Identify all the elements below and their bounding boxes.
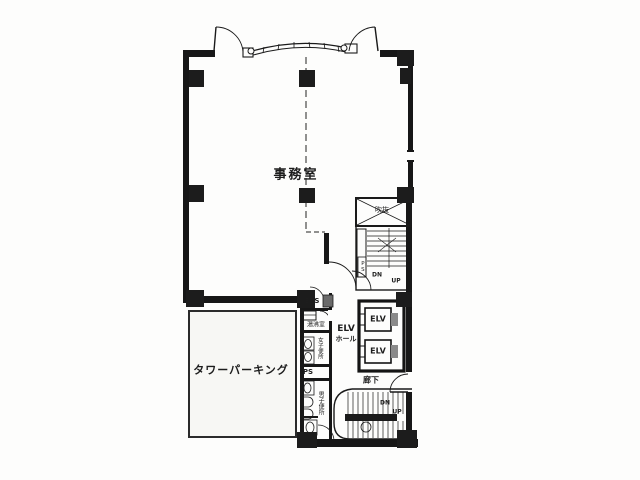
corridor-label: 廊下 xyxy=(363,375,379,384)
floorplan: 事務室 タワーパーキング ELV ホール ELV ELV 廊下 吹抜 EPS 湯… xyxy=(0,0,640,480)
tower-parking-label: タワーパーキング xyxy=(193,365,289,378)
elevator-1-label: ELV xyxy=(370,314,386,323)
pipe-shaft-label: PS xyxy=(303,368,313,376)
window-notch xyxy=(407,152,414,160)
elevator-shaft xyxy=(359,301,404,371)
office-room-label: 事務室 xyxy=(273,169,318,184)
upper-stair-down-label: DN xyxy=(372,273,382,280)
lower-stair-down-label: DN xyxy=(380,401,390,408)
kitchenette-door-gap xyxy=(328,310,333,321)
lower-stair-up-label: UP xyxy=(392,410,401,417)
eps-label: EPS xyxy=(305,297,320,305)
elevator-hall-label-line1: ELV xyxy=(337,324,355,334)
void-label: 吹抜 xyxy=(375,206,389,214)
womens-toilet-label: 女子便所 xyxy=(316,337,322,359)
mens-toilet-label: 男子便所 xyxy=(317,391,323,415)
stair-shaft-label: PS xyxy=(359,261,365,273)
elevator-2-label: ELV xyxy=(370,346,386,355)
upper-staircase xyxy=(356,226,411,290)
arc-window xyxy=(243,42,357,57)
upper-stair-up-label: UP xyxy=(391,279,400,286)
elevator-hall-label-line2: ホール xyxy=(336,335,357,343)
kitchenette-label: 湯沸室 xyxy=(307,323,325,330)
